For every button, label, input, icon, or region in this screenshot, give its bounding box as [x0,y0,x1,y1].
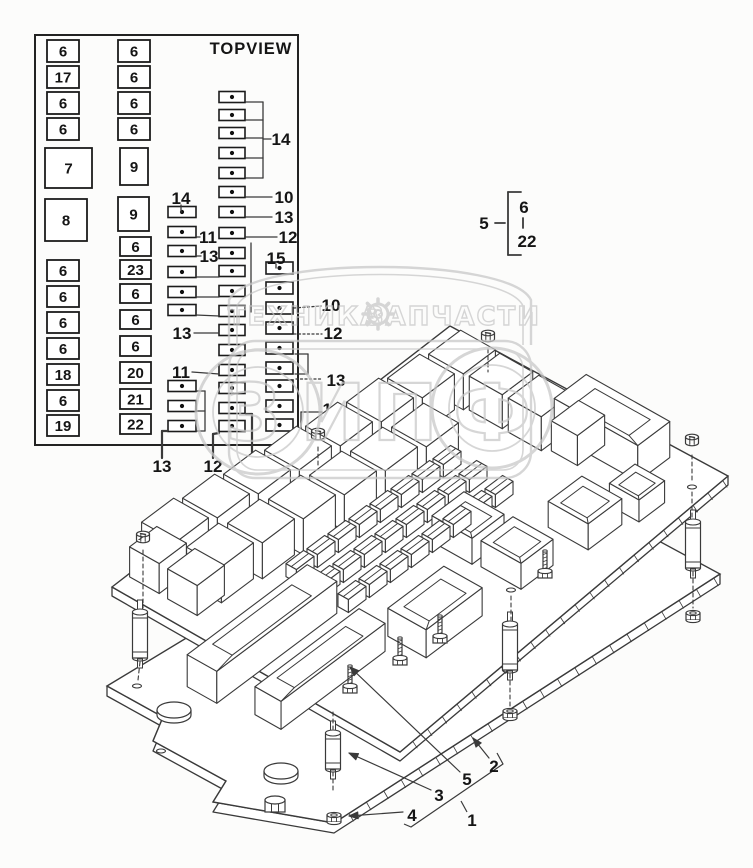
svg-text:6: 6 [131,312,139,329]
relay-slot-box: 8 [45,199,87,241]
watermark-letter: П [372,369,437,459]
fuse [168,381,196,392]
fuse [168,421,196,432]
watermark-text-tehnika: ТЕХНИКА [228,302,382,332]
watermark-letter: Ф [453,369,530,459]
svg-text:8: 8 [62,213,70,230]
relay-slot-box: 6 [118,66,150,88]
svg-text:22: 22 [127,417,144,434]
plate-hole [133,684,142,688]
relay-slot-box: 6 [47,390,79,411]
svg-text:7: 7 [64,161,72,178]
part-number-label: 2 [489,757,498,776]
relay-slot-box: 20 [120,362,151,383]
svg-text:9: 9 [130,159,138,176]
relay-slot-box: 7 [45,148,92,188]
relay-slot-box: 18 [47,364,79,385]
part-number-label: 3 [434,786,443,805]
hex-bolt [686,434,699,446]
part-number-label: 15 [267,249,286,268]
hex-nut [503,708,517,720]
part-number-label: 12 [279,228,298,247]
fuse [168,207,196,218]
fuse [168,287,196,298]
relay-slot-box: 22 [120,414,151,434]
relay-slot-box: 17 [47,66,79,88]
standoff-spacer [686,510,701,578]
carriage-bolt [265,796,285,812]
svg-text:6: 6 [59,96,67,113]
fuse [168,305,196,316]
relay-slot-box: 6 [120,284,151,303]
relay-slot-box: 6 [120,310,151,329]
relay-slot-box: 9 [120,148,148,185]
svg-text:6: 6 [130,122,138,139]
svg-text:6: 6 [131,286,139,303]
svg-text:6: 6 [131,339,139,356]
svg-text:6: 6 [130,70,138,87]
plate-hole [507,588,516,592]
plate-hole [688,485,697,489]
fuse-box-assembly-diagram: TOPVIEW617667866661861966669962366620212… [0,0,753,868]
fuse [219,148,245,159]
part-number-label: 14 [272,130,291,149]
svg-text:6: 6 [59,315,67,332]
fuse [219,128,245,139]
svg-text:19: 19 [55,418,72,435]
relay-slot-box: 6 [118,118,150,140]
svg-text:18: 18 [55,367,72,384]
relay-slot-box: 6 [47,118,79,140]
svg-text:9: 9 [129,207,137,224]
standoff-spacer [133,600,148,668]
part-number-label: 13 [173,324,192,343]
svg-text:6: 6 [59,44,67,61]
relay-slot-box: 6 [47,312,79,333]
relay-slot-box: 6 [47,260,79,281]
watermark-text-zapchasti: ЗАПЧАСТИ [365,302,541,332]
fuse [219,168,245,179]
svg-text:6: 6 [59,263,67,280]
hex-nut [686,610,700,622]
svg-text:21: 21 [127,392,144,409]
fuse [168,267,196,278]
standoff-spacer [503,612,518,680]
fuse [219,266,245,277]
part-number-label: 14 [172,189,191,208]
fuse [219,187,245,198]
relay-slot-box: 9 [118,197,149,231]
part-number-label: 13 [200,247,219,266]
fuse [219,92,245,103]
topview-schematic: TOPVIEW617667866661861966669962366620212… [35,35,345,476]
plate-hole [157,749,166,753]
part-number-label: 1 [467,811,476,830]
relay-slot-box: 6 [120,336,151,356]
svg-text:6: 6 [59,393,67,410]
relay-slot-box: 6 [47,286,79,307]
relay-slot-box: 6 [47,92,79,114]
fuse [219,110,245,121]
fuse [168,227,196,238]
part-number-label: 4 [407,806,417,825]
svg-text:6: 6 [59,122,67,139]
part-number-label: 13 [275,208,294,227]
plate-bump [157,702,191,723]
part-number-label: 11 [199,228,217,247]
svg-text:6: 6 [59,289,67,306]
svg-text:6: 6 [130,96,138,113]
part-number-label: 5 [462,770,471,789]
fuse [168,246,196,257]
fuse [219,207,245,218]
part-number-label: 6 [519,198,528,217]
part-number-label: 5 [479,214,488,233]
fuse [219,248,245,259]
relay-slot-box: 6 [47,338,79,359]
plate-bump [264,763,298,784]
watermark-letter: З [225,369,280,459]
range-callout: 5622 [479,192,536,255]
svg-text:6: 6 [59,341,67,358]
relay-slot-box: 6 [118,40,150,62]
topview-title: TOPVIEW [210,40,293,58]
svg-text:17: 17 [55,70,72,87]
fuse [168,401,196,412]
part-number-label: 22 [518,232,537,251]
relay-slot-box: 23 [120,260,151,279]
svg-text:20: 20 [127,365,144,382]
part-number-label: 11 [172,363,190,382]
relay-slot-box: 6 [120,237,151,256]
relay-slot-box: 19 [47,415,79,436]
relay-slot-box: 21 [120,389,151,409]
part-number-label: 10 [275,188,294,207]
svg-text:6: 6 [131,239,139,256]
watermark-letter: И [300,369,365,459]
hex-nut [327,812,341,824]
relay-slot-box: 6 [47,40,79,62]
relay-slot-box: 6 [118,92,150,114]
part-number-label: 13 [153,457,172,476]
svg-text:23: 23 [127,262,144,279]
watermark: ЗИПФТЕХНИКАЗАПЧАСТИ [196,267,552,478]
svg-text:6: 6 [130,44,138,61]
fuse [219,228,245,239]
parts-diagram-page: TOPVIEW617667866661861966669962366620212… [0,0,753,868]
